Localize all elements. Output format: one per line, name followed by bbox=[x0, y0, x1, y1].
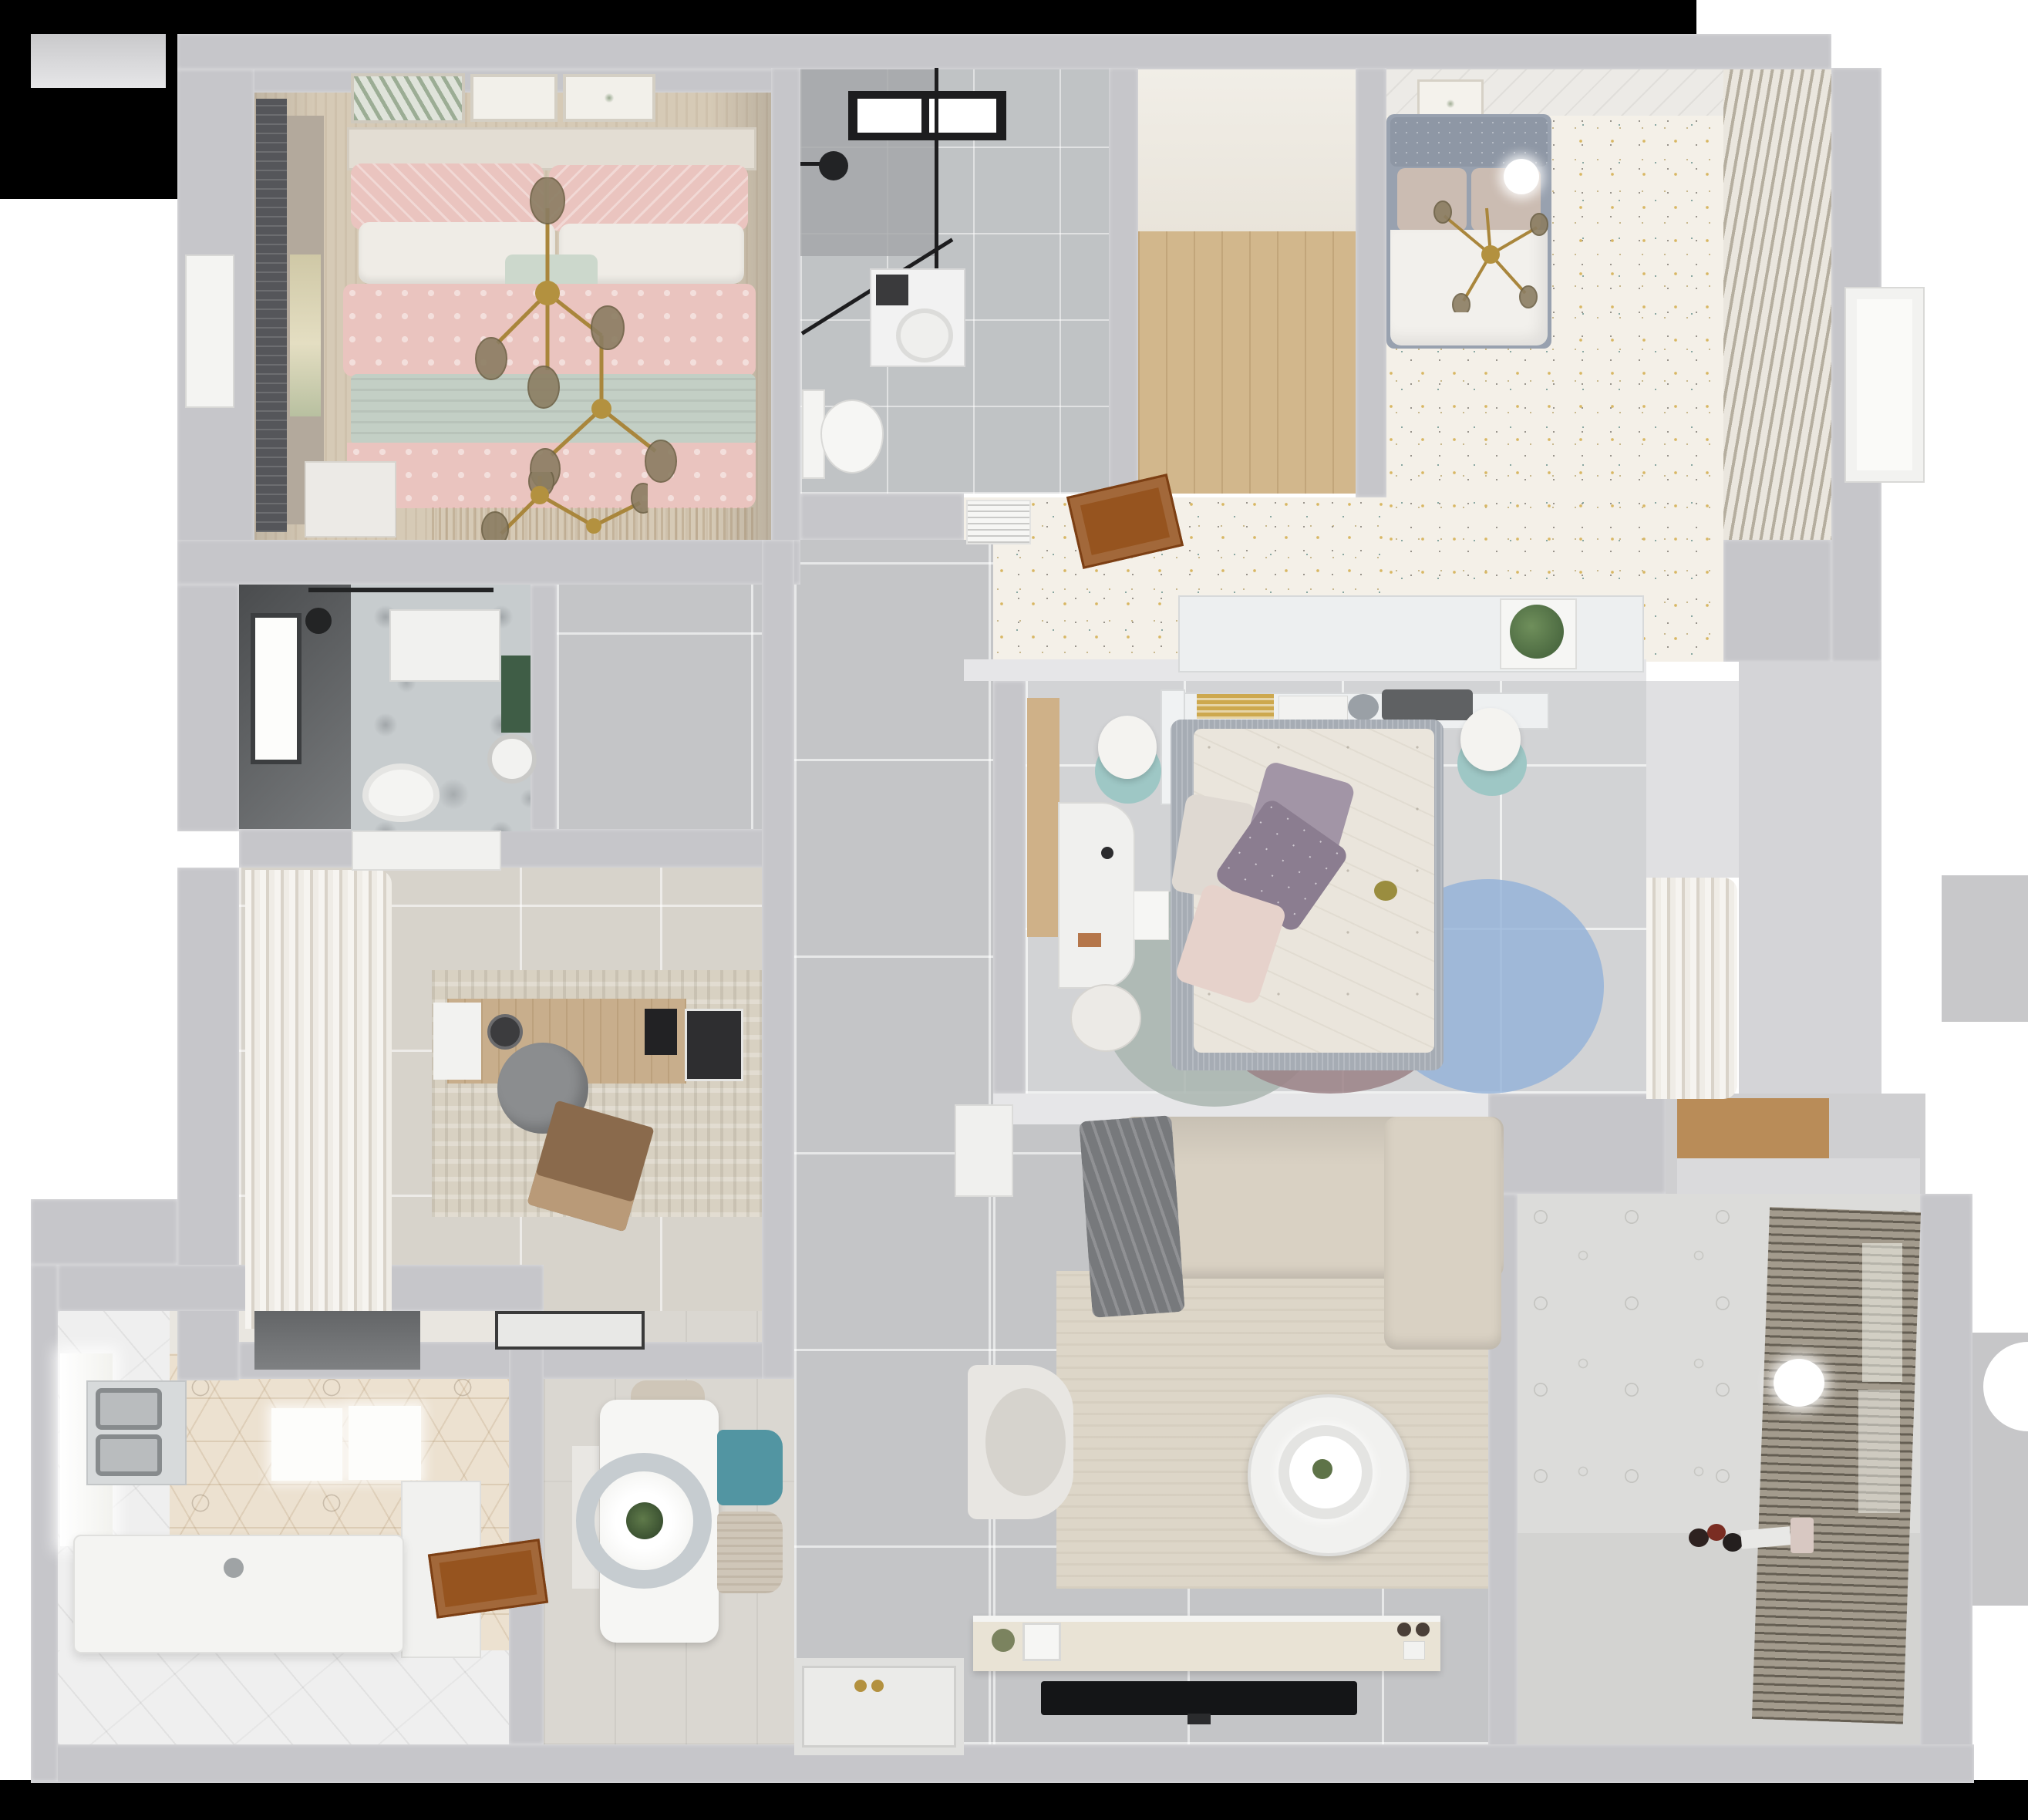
hallway-shelf-plant bbox=[1510, 605, 1564, 659]
study-desk-tablet bbox=[645, 1009, 677, 1055]
bathroom2-poster bbox=[389, 609, 500, 682]
study-wave-curtains bbox=[245, 870, 392, 1329]
wall-under-wardrobe bbox=[1723, 540, 1831, 662]
kitchen-island-faucet bbox=[224, 1558, 244, 1578]
gray-chunk-top-left bbox=[31, 34, 166, 88]
hallway-radiator-grille bbox=[966, 500, 1031, 544]
floorplan-canvas bbox=[0, 0, 2028, 1820]
study-door-mat bbox=[495, 1311, 645, 1350]
entry-door-mat bbox=[794, 1658, 964, 1755]
washing-machine-controls bbox=[876, 275, 908, 305]
wall-bedroom1-bathroom1 bbox=[771, 68, 800, 544]
wall-kitchen-topleft bbox=[31, 1199, 177, 1265]
balcony-toy-3 bbox=[1723, 1533, 1743, 1552]
bedroom3-desk-copper-item bbox=[1078, 933, 1101, 947]
bathroom2-window bbox=[251, 613, 302, 764]
living-coffee-table-plant bbox=[1312, 1459, 1332, 1479]
balcony-toy-1 bbox=[1689, 1528, 1709, 1547]
bathroom2-round-basin bbox=[487, 734, 537, 784]
study-desk-cup bbox=[487, 1014, 523, 1050]
study-desk-monitor bbox=[685, 1009, 743, 1081]
bedroom1-frame-3 bbox=[563, 74, 655, 122]
bedroom3-lamp-right bbox=[1460, 708, 1521, 771]
wall-closet-front-bedroom3 bbox=[1646, 681, 1739, 878]
living-side-table bbox=[955, 1104, 1013, 1197]
bathroom1-shower-head bbox=[819, 151, 848, 180]
dining-chair-right-beige bbox=[717, 1512, 783, 1593]
closet-glow-ceiling bbox=[1138, 68, 1356, 235]
console-decor-cup bbox=[1403, 1641, 1425, 1660]
balcony-pink-toy bbox=[1791, 1518, 1814, 1553]
wall-balcony-topleft bbox=[1488, 1094, 1666, 1194]
storage-ledge bbox=[1677, 1158, 1920, 1194]
bedroom3-side-paper bbox=[1134, 891, 1169, 940]
bedroom3-desk-mouse bbox=[1101, 847, 1113, 859]
kitchen-range-hood bbox=[254, 1311, 420, 1370]
washing-machine-door bbox=[896, 308, 953, 362]
bedroom2-gold-fan-light bbox=[1433, 197, 1548, 312]
entry-door-handle-1 bbox=[854, 1680, 867, 1692]
wall-bathroom2-left bbox=[177, 585, 239, 831]
wall-bedroom1-bottom bbox=[177, 540, 800, 585]
living-armchair-seat bbox=[985, 1388, 1066, 1496]
wall-bedroom3-left bbox=[993, 681, 1026, 1094]
bedroom3-books-white bbox=[1278, 696, 1348, 720]
black-band-bottom bbox=[0, 1780, 2028, 1820]
console-decor-knob-2 bbox=[1416, 1623, 1430, 1636]
bedroom3-gold-accent bbox=[1374, 881, 1397, 901]
gold-branch-chandelier-1 bbox=[451, 177, 706, 509]
wall-bathroom2-right bbox=[531, 585, 557, 831]
kitchen-lit-counter-1 bbox=[271, 1408, 342, 1481]
wall-bottom bbox=[31, 1744, 1974, 1783]
bedroom3-desk bbox=[1058, 802, 1135, 989]
wall-corridor-left bbox=[762, 540, 794, 1379]
living-tv-stand bbox=[1187, 1714, 1211, 1724]
console-decor-green bbox=[992, 1629, 1015, 1652]
bathroom2-green-accent bbox=[501, 656, 531, 733]
bedroom2-louver-wardrobe bbox=[1723, 68, 1831, 540]
console-decor-frames bbox=[1022, 1623, 1061, 1661]
black-band-top bbox=[0, 0, 1696, 34]
entry-door-handle-2 bbox=[871, 1680, 884, 1692]
bedroom1-frame-1 bbox=[351, 73, 465, 123]
console-decor-knob-1 bbox=[1397, 1623, 1411, 1636]
bedroom1-nightstand bbox=[305, 461, 396, 538]
wall-balcony-right bbox=[1920, 1194, 1972, 1780]
dining-chair-teal bbox=[717, 1430, 783, 1505]
balcony-blind-glow-1 bbox=[1862, 1243, 1902, 1382]
bedroom1-door bbox=[185, 254, 234, 408]
gray-blob-right-1 bbox=[1942, 875, 2028, 1022]
wall-kitchen-dining bbox=[509, 1311, 544, 1744]
bedroom3-lamp-left bbox=[1098, 716, 1157, 779]
bedroom3-shelf-dish bbox=[1348, 694, 1379, 720]
kitchen-lit-counter-2 bbox=[349, 1406, 421, 1480]
bedroom2-glow-light bbox=[1504, 159, 1539, 194]
bedroom3-desk-chair bbox=[1070, 984, 1141, 1052]
bathroom1-skylight-pane-1 bbox=[857, 99, 921, 133]
bedroom3-books-yellow bbox=[1197, 694, 1274, 719]
wall-top bbox=[177, 34, 1831, 69]
wall-closet-bedroom2 bbox=[1356, 68, 1386, 497]
exterior-door-right bbox=[1844, 287, 1925, 483]
bedroom1-roller-blind bbox=[256, 99, 287, 532]
bedroom1-window-garden-glimpse bbox=[290, 254, 321, 416]
living-wall-tv bbox=[1041, 1681, 1357, 1715]
wall-study-top bbox=[239, 829, 771, 868]
storage-wood-shelf bbox=[1677, 1098, 1829, 1158]
kitchen-sink-basin-1 bbox=[96, 1388, 162, 1430]
balcony-pendant-ball-light bbox=[1774, 1359, 1824, 1407]
bathroom2-ceiling-rail bbox=[308, 588, 494, 592]
kitchen-whitetile-bottom bbox=[58, 1650, 509, 1744]
bedroom3-sheer-curtain-wardrobe bbox=[1646, 878, 1737, 1099]
closet-wood-floor bbox=[1138, 231, 1356, 494]
bathroom1-skylight-pane-2 bbox=[929, 99, 996, 133]
gold-branch-chandelier-2 bbox=[455, 472, 648, 540]
wall-bathroom1-closet bbox=[1109, 68, 1138, 497]
kitchen-sink-basin-2 bbox=[96, 1434, 162, 1476]
study-desk-paper bbox=[433, 1003, 481, 1080]
living-sofa-chaise bbox=[1384, 1117, 1501, 1350]
bedroom3-shelf-tablet bbox=[1382, 689, 1473, 720]
kitchen-island bbox=[73, 1535, 404, 1653]
wall-kitchen-left bbox=[31, 1265, 58, 1781]
dining-table-plant bbox=[626, 1502, 663, 1539]
wall-right-of-bedroom3 bbox=[1739, 659, 1881, 1095]
bedroom3-wood-bench bbox=[1027, 698, 1059, 937]
hallway-branch-floor bbox=[557, 585, 762, 831]
study-window-sill bbox=[352, 831, 501, 871]
wall-bathroom1-bottom bbox=[800, 494, 964, 540]
bedroom1-frame-2 bbox=[470, 74, 558, 122]
balcony-blind-glow-2 bbox=[1858, 1390, 1900, 1513]
black-corner-top-left bbox=[0, 0, 177, 199]
bathroom2-toilet bbox=[362, 763, 440, 822]
living-sofa-blanket bbox=[1079, 1115, 1184, 1318]
bathroom2-shower-head bbox=[305, 608, 332, 634]
